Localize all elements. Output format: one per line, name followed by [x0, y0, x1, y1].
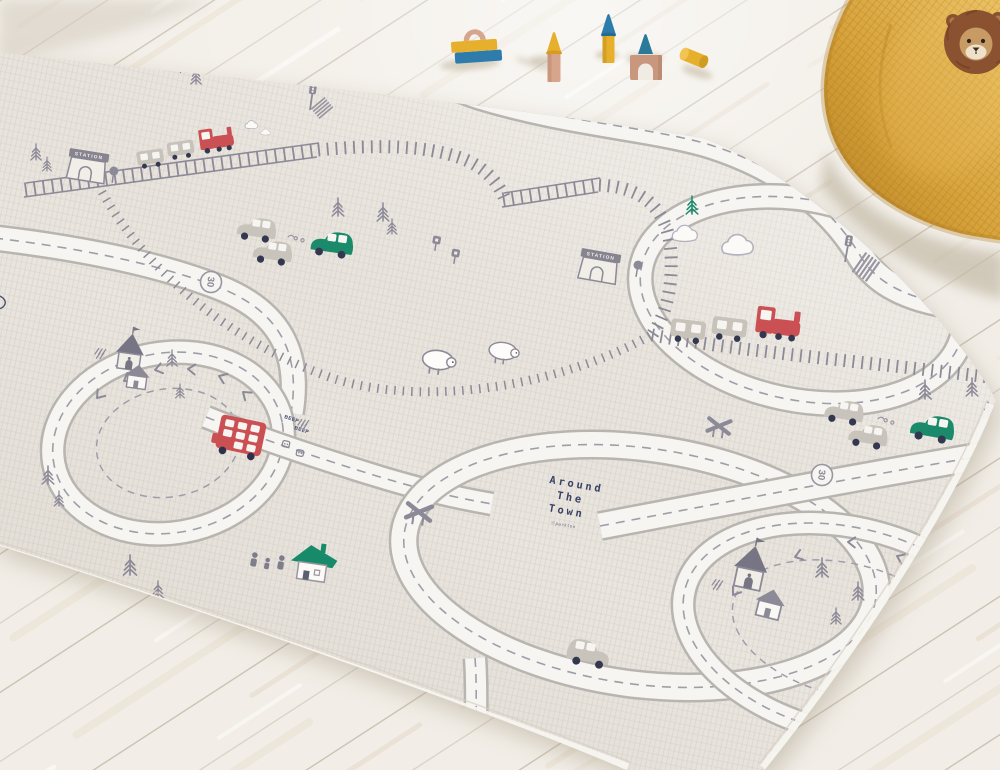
photo-canvas: STATION STATION: [0, 0, 1000, 770]
station-building-1: STATION: [65, 148, 109, 184]
svg-text:30: 30: [204, 276, 216, 288]
svg-text:30: 30: [815, 469, 827, 481]
photo-stage: STATION STATION: [0, 0, 1000, 770]
